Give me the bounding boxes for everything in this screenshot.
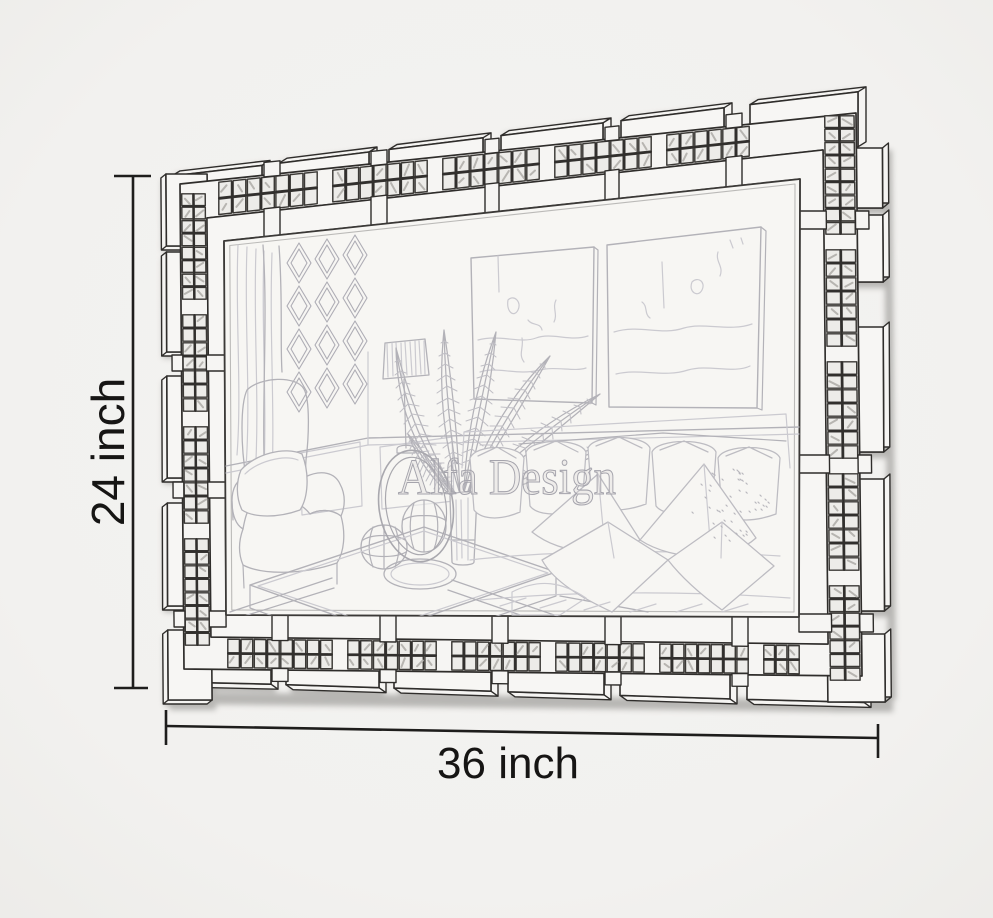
svg-text:Alfa Design: Alfa Design xyxy=(398,450,616,506)
svg-text:36 inch: 36 inch xyxy=(437,739,579,788)
svg-text:24 inch: 24 inch xyxy=(82,378,134,526)
